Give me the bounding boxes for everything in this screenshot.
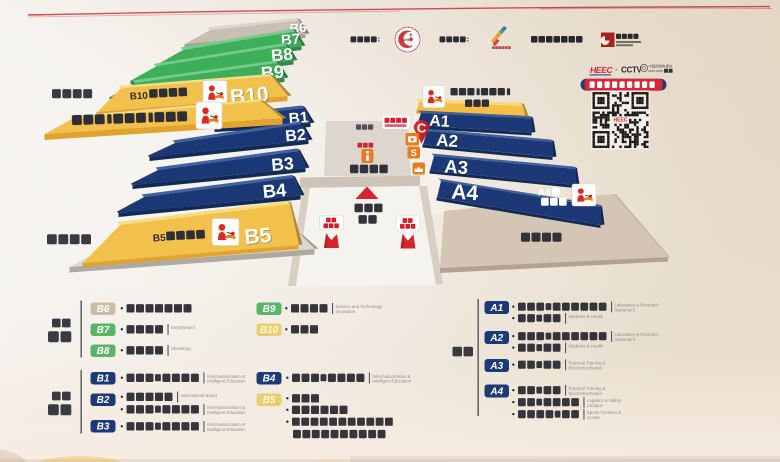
- svg-text:HEEC: HEEC: [590, 65, 613, 75]
- svg-text:Intelligent Education: Intelligent Education: [207, 379, 246, 384]
- svg-text:Electromechanics: Electromechanics: [569, 365, 603, 370]
- svg-text:B1: B1: [97, 374, 110, 385]
- svg-text:International Brand: International Brand: [181, 393, 218, 398]
- svg-text:A4: A4: [451, 181, 480, 206]
- svg-text:CCTV: CCTV: [621, 66, 643, 75]
- svg-text:C: C: [417, 120, 427, 135]
- svg-text:A4: A4: [538, 188, 551, 199]
- svg-text:B3: B3: [270, 153, 294, 175]
- svg-text:A3: A3: [489, 361, 503, 372]
- svg-text:CAHE: CAHE: [400, 38, 411, 42]
- svg-text:B8: B8: [97, 346, 110, 357]
- svg-text:中国网络电视台: 中国网络电视台: [649, 64, 673, 69]
- svg-text:A4: A4: [489, 387, 503, 398]
- svg-text:cctv.com: cctv.com: [649, 69, 664, 73]
- svg-text:Electromechanics: Electromechanics: [569, 391, 603, 396]
- svg-text:A1: A1: [489, 303, 503, 314]
- svg-text:B6: B6: [97, 304, 110, 315]
- svg-text:Medicine & Health: Medicine & Health: [569, 314, 604, 319]
- svg-text:Intelligent Education: Intelligent Education: [372, 379, 411, 384]
- svg-text:A2: A2: [489, 333, 503, 344]
- svg-text:B10: B10: [260, 325, 279, 336]
- svg-text:B4: B4: [263, 374, 276, 385]
- svg-text:Innovation: Innovation: [336, 309, 356, 314]
- svg-text:Medicine & Health: Medicine & Health: [569, 344, 604, 349]
- svg-text:B5: B5: [153, 233, 167, 245]
- svg-text:B4: B4: [262, 179, 288, 202]
- svg-text:A2: A2: [436, 131, 459, 151]
- svg-text:A3: A3: [444, 156, 469, 179]
- svg-text:Intelligent Education: Intelligent Education: [207, 427, 246, 432]
- svg-text:Intelligent Education: Intelligent Education: [207, 410, 246, 415]
- svg-text:Instrument: Instrument: [615, 337, 636, 342]
- svg-text:B5: B5: [263, 395, 276, 406]
- svg-text:B9: B9: [263, 304, 276, 315]
- svg-text:B2: B2: [97, 395, 110, 406]
- svg-text:A1: A1: [429, 113, 451, 131]
- svg-text:Campus: Campus: [587, 403, 603, 408]
- svg-text:B5: B5: [244, 224, 273, 249]
- svg-text:B7: B7: [97, 325, 110, 336]
- svg-text:Instrument: Instrument: [615, 307, 636, 312]
- svg-text:Goods: Goods: [587, 415, 600, 420]
- svg-text:HEEC: HEEC: [614, 118, 628, 124]
- svg-text:B10: B10: [130, 91, 149, 103]
- svg-text:B3: B3: [97, 422, 110, 433]
- svg-text:Employment: Employment: [171, 325, 196, 330]
- svg-text:S: S: [411, 148, 417, 158]
- svg-text:B2: B2: [285, 127, 307, 146]
- svg-text:×: ×: [615, 68, 618, 74]
- svg-text:Shandong: Shandong: [171, 346, 191, 351]
